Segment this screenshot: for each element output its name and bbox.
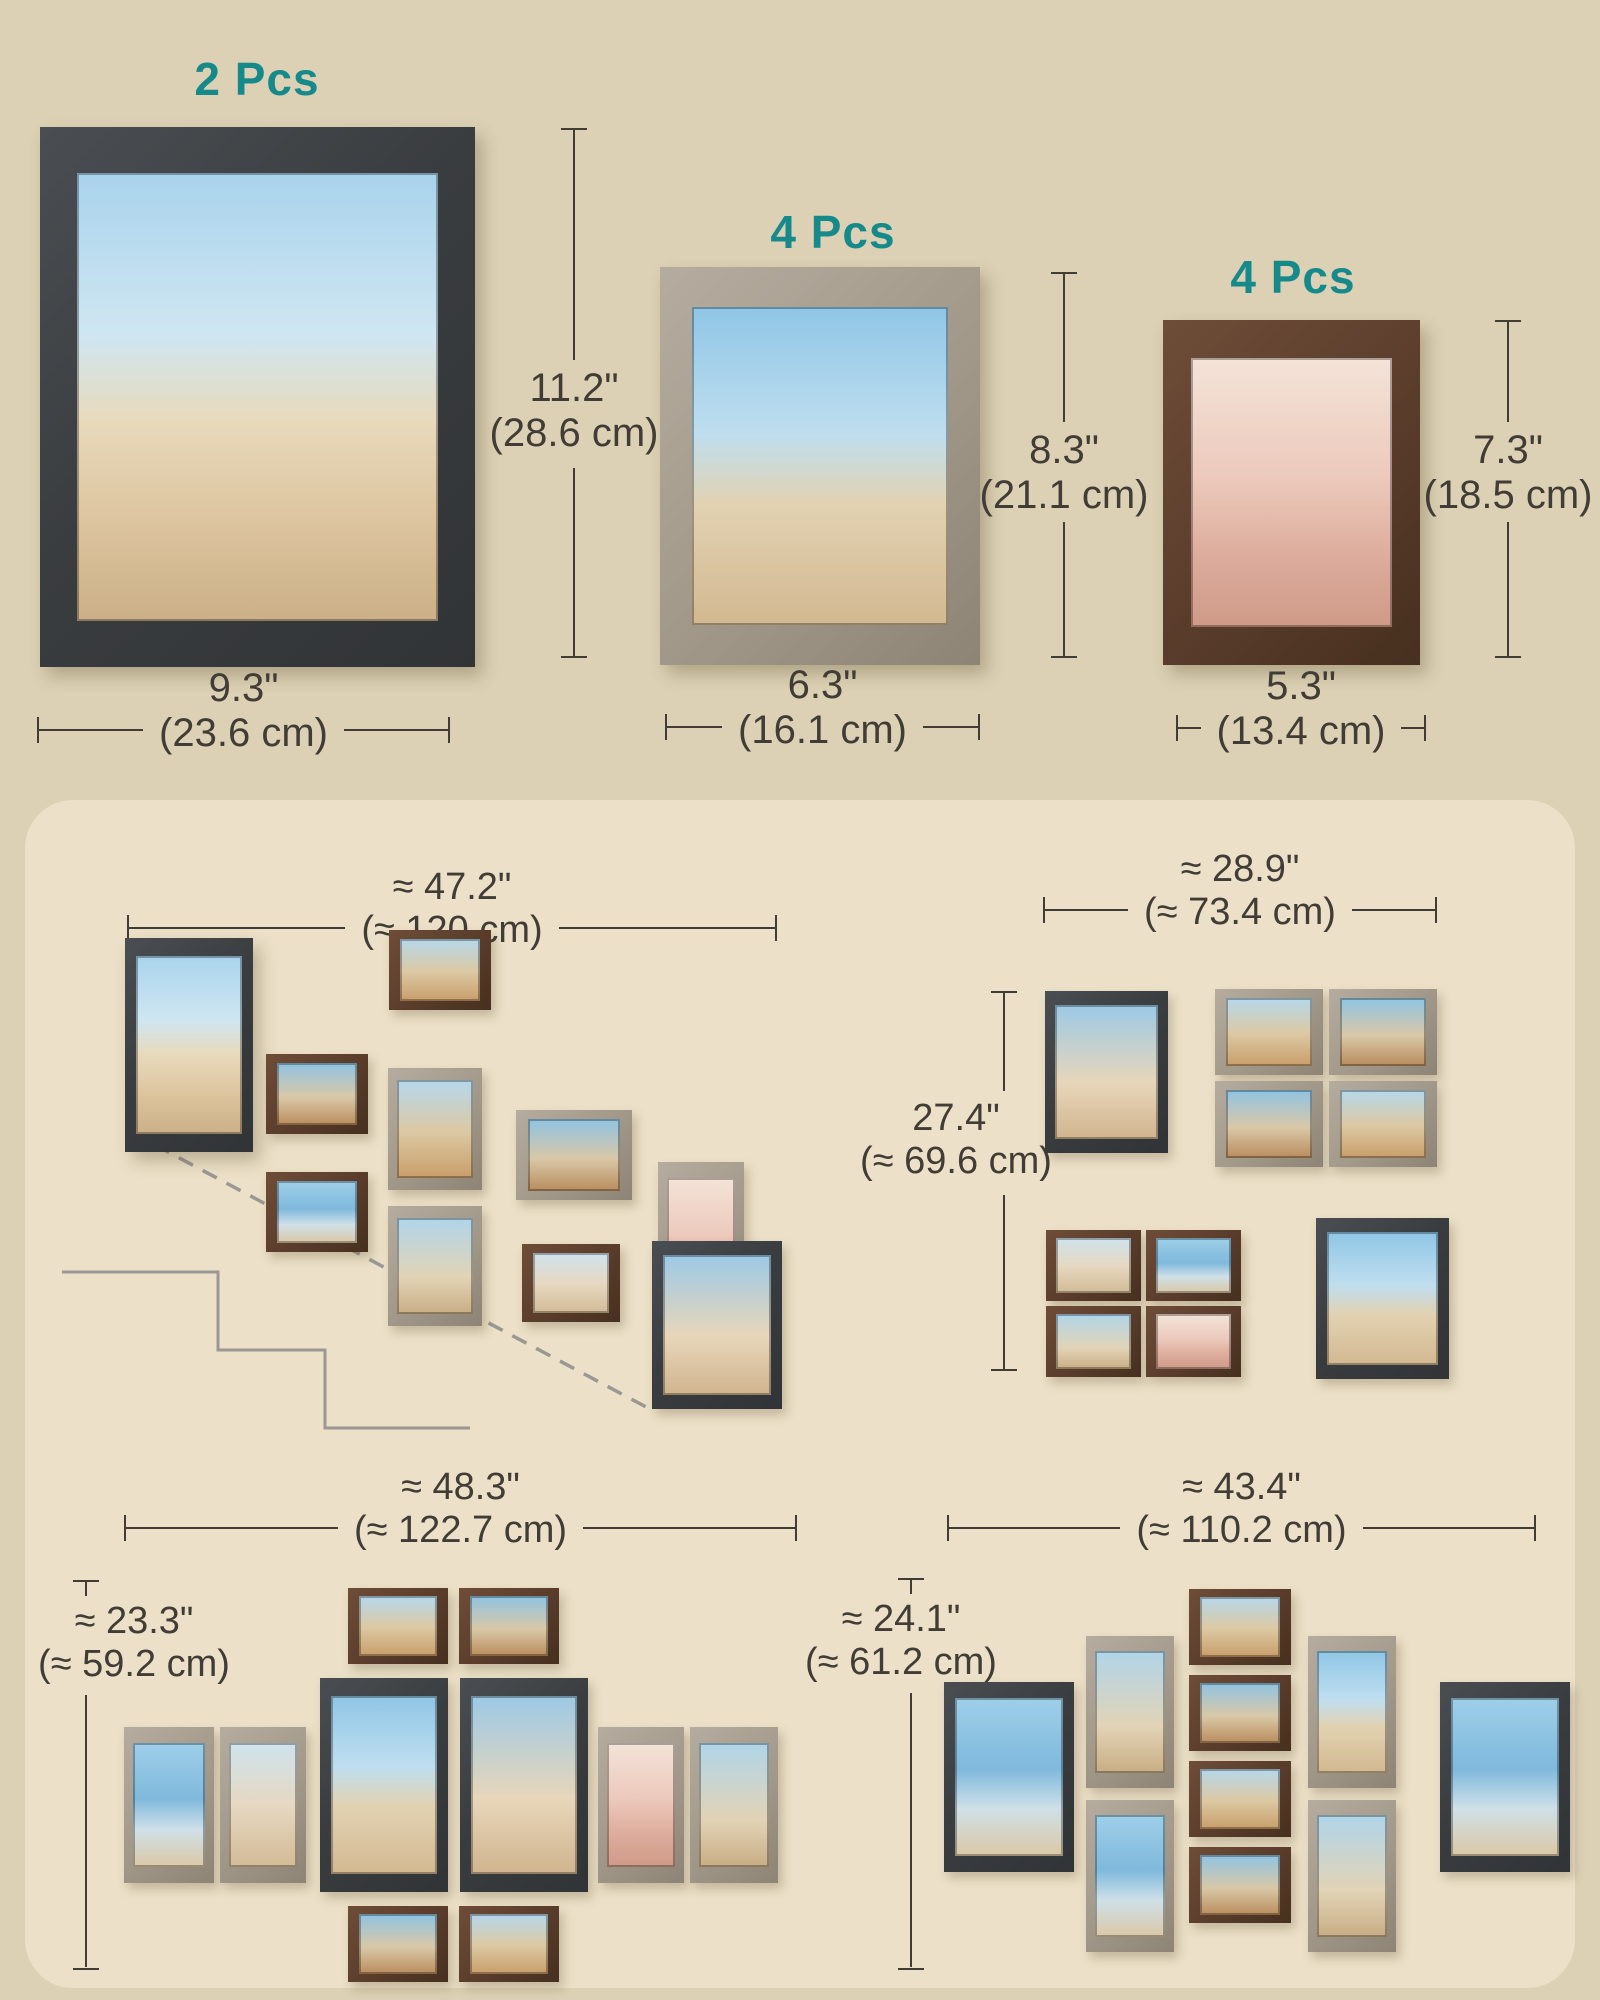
frame-brown	[1146, 1230, 1241, 1301]
frame-gray	[1086, 1800, 1174, 1952]
dimension-width-small-frame: 5.3" (13.4 cm)	[1176, 661, 1426, 757]
photo	[1156, 1238, 1230, 1293]
photo	[955, 1698, 1063, 1856]
photo	[1095, 1651, 1165, 1773]
layout-width-cm: (≈ 110.2 cm)	[1136, 1509, 1346, 1552]
photo	[1200, 1769, 1280, 1828]
photo	[533, 1253, 609, 1314]
dimension-height-diamond-layout: ≈ 24.1" (≈ 61.2 cm)	[910, 1578, 912, 1970]
height-value-in: 8.3"	[980, 428, 1149, 473]
height-value-cm: (21.1 cm)	[980, 473, 1149, 518]
frame-black	[944, 1682, 1074, 1872]
photo	[1340, 1090, 1426, 1159]
layout-height-in: 27.4"	[860, 1097, 1052, 1140]
frame-gray	[1308, 1800, 1396, 1952]
width-value-in: 6.3"	[788, 663, 858, 708]
frame-brown	[1146, 1306, 1241, 1377]
photo	[1095, 1815, 1165, 1937]
photo	[397, 1218, 472, 1314]
frame-black	[1045, 991, 1168, 1153]
photo	[277, 1181, 357, 1243]
frame-gray	[220, 1727, 306, 1883]
frame-gray	[124, 1727, 214, 1883]
frame-gray	[388, 1206, 482, 1326]
photo	[136, 956, 242, 1134]
photo	[699, 1743, 769, 1868]
frame-black	[652, 1241, 782, 1409]
frame-brown	[1189, 1847, 1291, 1923]
dimension-width-diamond-layout: ≈ 43.4" (≈ 110.2 cm)	[947, 1461, 1536, 1557]
width-value-cm: (13.4 cm)	[1217, 709, 1386, 754]
height-value-in: 7.3"	[1424, 428, 1593, 473]
frame-black	[1440, 1682, 1570, 1872]
frame-gray	[1329, 1081, 1437, 1167]
width-value-cm: (23.6 cm)	[159, 711, 328, 756]
frame-gray	[1215, 1081, 1323, 1167]
photo	[133, 1743, 205, 1868]
photo	[1226, 1090, 1312, 1159]
dimension-height-symmetric-layout: ≈ 23.3" (≈ 59.2 cm)	[85, 1580, 87, 1970]
frame-brown	[1189, 1675, 1291, 1751]
frame-gray	[388, 1068, 482, 1190]
photo	[471, 1696, 577, 1874]
photo	[400, 939, 480, 1001]
photo	[1340, 998, 1426, 1067]
frame-gray	[1329, 989, 1437, 1075]
photo	[1055, 1005, 1157, 1139]
photo	[331, 1696, 437, 1874]
photo	[1056, 1314, 1130, 1369]
dimension-height-grid-layout: 27.4" (≈ 69.6 cm)	[1003, 991, 1005, 1371]
photo	[470, 1914, 548, 1973]
layout-width-in: ≈ 48.3"	[401, 1466, 520, 1509]
photo	[1200, 1855, 1280, 1914]
layout-width-cm: (≈ 73.4 cm)	[1144, 891, 1336, 934]
photo	[1226, 998, 1312, 1067]
layout-width-in: ≈ 43.4"	[1182, 1466, 1301, 1509]
height-value-cm: (18.5 cm)	[1424, 473, 1593, 518]
photo	[359, 1914, 437, 1973]
photo-family-beach	[77, 173, 438, 621]
frame-brown	[522, 1244, 620, 1322]
photo	[1317, 1815, 1387, 1937]
dimension-width-symmetric-layout: ≈ 48.3" (≈ 122.7 cm)	[124, 1461, 797, 1557]
frame-brown	[266, 1054, 368, 1134]
frame-black	[320, 1678, 448, 1892]
layout-width-in: ≈ 47.2"	[393, 866, 512, 909]
layout-height-in: ≈ 24.1"	[805, 1598, 997, 1641]
layout-height-cm: (≈ 59.2 cm)	[38, 1643, 230, 1686]
photo	[1156, 1314, 1230, 1369]
frame-brown	[348, 1906, 448, 1982]
photo	[277, 1063, 357, 1125]
layout-height-cm: (≈ 69.6 cm)	[860, 1140, 1052, 1183]
photo	[1327, 1232, 1437, 1366]
width-value-in: 5.3"	[1266, 664, 1336, 709]
dimension-height-medium-frame: 8.3" (21.1 cm)	[1063, 272, 1065, 658]
photo	[663, 1255, 771, 1394]
photo	[528, 1119, 621, 1191]
frame-gray	[690, 1727, 778, 1883]
photo	[1200, 1597, 1280, 1656]
photo	[1317, 1651, 1387, 1773]
frame-brown	[459, 1588, 559, 1664]
frame-brown	[1189, 1761, 1291, 1837]
qty-label-large-frame: 2 Pcs	[194, 52, 319, 106]
dimension-height-large-frame: 11.2" (28.6 cm)	[573, 128, 575, 658]
frame-brown	[1189, 1589, 1291, 1665]
photo	[229, 1743, 298, 1868]
frame-brown	[389, 930, 491, 1010]
frame-black	[460, 1678, 588, 1892]
photo	[359, 1596, 437, 1655]
product-frame-brown-small	[1163, 320, 1420, 665]
qty-label-small-frame: 4 Pcs	[1230, 250, 1355, 304]
frame-gray	[598, 1727, 684, 1883]
photo	[470, 1596, 548, 1655]
product-frame-black-large	[40, 127, 475, 667]
frame-brown	[1046, 1230, 1141, 1301]
qty-label-medium-frame: 4 Pcs	[770, 205, 895, 259]
dimension-height-small-frame: 7.3" (18.5 cm)	[1507, 320, 1509, 658]
frame-brown	[1046, 1306, 1141, 1377]
photo	[607, 1743, 676, 1868]
layout-height-in: ≈ 23.3"	[38, 1600, 230, 1643]
dimension-width-large-frame: 9.3" (23.6 cm)	[37, 663, 450, 759]
layout-width-in: ≈ 28.9"	[1181, 848, 1300, 891]
frame-black	[1316, 1218, 1449, 1379]
product-frame-gray-medium	[660, 267, 980, 665]
frame-gray	[516, 1110, 632, 1200]
frame-brown	[266, 1172, 368, 1252]
photo	[1056, 1238, 1130, 1293]
height-value-cm: (28.6 cm)	[490, 411, 659, 456]
frame-gray	[1308, 1636, 1396, 1788]
frame-black	[125, 938, 253, 1152]
dimension-width-grid-layout: ≈ 28.9" (≈ 73.4 cm)	[1043, 843, 1437, 939]
frame-gray	[1215, 989, 1323, 1075]
width-value-cm: (16.1 cm)	[738, 708, 907, 753]
height-value-in: 11.2"	[490, 366, 659, 411]
frame-brown	[459, 1906, 559, 1982]
frame-set-infographic: 2 Pcs 4 Pcs 4 Pcs 11.2" (28.6 cm) 8.3" (…	[0, 0, 1600, 2000]
dimension-width-medium-frame: 6.3" (16.1 cm)	[665, 660, 980, 756]
frame-gray	[1086, 1636, 1174, 1788]
photo	[1451, 1698, 1559, 1856]
photo	[397, 1080, 472, 1178]
frame-brown	[348, 1588, 448, 1664]
layout-width-cm: (≈ 122.7 cm)	[354, 1509, 567, 1552]
width-value-in: 9.3"	[209, 666, 279, 711]
photo-girls-flowers	[1191, 358, 1391, 627]
photo-mother-daughter-beach	[692, 307, 948, 625]
layout-height-cm: (≈ 61.2 cm)	[805, 1641, 997, 1684]
photo	[1200, 1683, 1280, 1742]
